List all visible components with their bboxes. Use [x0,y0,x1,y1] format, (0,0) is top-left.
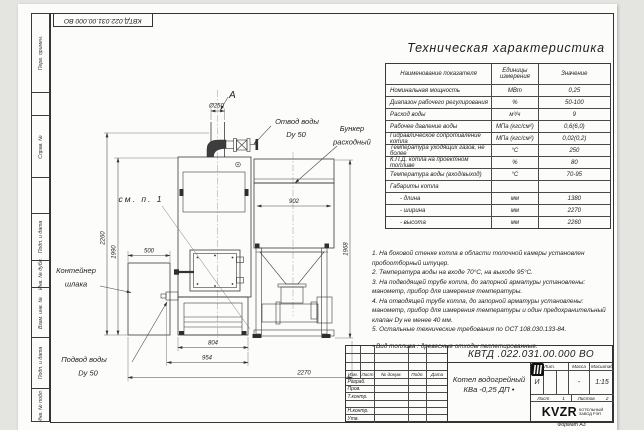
logo-text: KVZR [542,405,577,419]
dim-804: 804 [208,341,219,347]
title-block-left: Изм. Лист № докум. Подп. Дата Разраб. Пр… [346,346,448,423]
table-row: - высота мм 2260 [386,216,610,228]
dim-902: 902 [289,199,300,205]
label-podvod-dy: Dy 50 [78,369,98,378]
boiler-body [161,122,251,335]
label-otvod-dy: Dy 50 [286,130,306,139]
spare-row [346,354,447,362]
product-name: Котел водогрейный КВа -0,25 ДП • [448,363,531,423]
slag-container [128,263,170,335]
note-line: пробоотборный штуцер. [372,259,614,269]
dim-d250: Ø250 [208,104,224,110]
signature-row: Пров. [346,386,447,393]
table-row: Гидравлическое сопротивление котла МПа (… [386,132,610,144]
callouts: Отвод воды Dy 50 Бункер расходный см. п.… [56,117,372,378]
dim-2260: 2260 [101,231,107,246]
sheet-row: Лист 1 Листов 2 [531,395,614,402]
table-row: Номинальная мощность МВт 0,25 [386,84,610,96]
table-row: Рабочее давление воды МПа (кгс/см²) 0,6(… [386,120,610,132]
spare-row [346,363,447,371]
dim-500: 500 [144,249,155,255]
note-line: манометр, прибор для измерения температу… [372,306,614,316]
dim-954: 954 [202,356,213,362]
doc-number: КВТД .022.031.00.000 ВО [448,346,614,363]
label-bunker-2: расходный [332,138,372,147]
note-line: клапан Dу не менее 40 мм. [372,316,614,326]
header-name: Наименование показателя [386,64,491,84]
logo-subtext: КОТЕЛЬНЫЙ ЗАВОД РЭП [579,408,603,417]
signature-row [346,401,447,408]
massa-value: - [569,371,590,394]
note-line: 4. На отводящей трубе котла, до запорной… [372,297,614,307]
kvzr-emblem-icon [531,363,544,376]
feed-bunker [253,159,335,338]
label-container-2: шлака [65,280,87,289]
masshtab-value: 1:15 [590,371,614,394]
dim-1990: 1990 [112,245,118,259]
dimensions: Ø250 2260 1990 500 902 1968 804 [101,104,354,382]
table-row: Габариты котла [386,180,610,192]
table-row: К.П.Д. котла на проектном топливе % 80 [386,156,610,168]
table-row: - длина мм 1380 [386,192,610,204]
tech-table: Наименование показателя Единицы измерени… [385,63,611,229]
label-bunker: Бункер [340,124,364,133]
note-line: 1. На боковой стенке котла в области топ… [372,249,614,259]
dim-2270: 2270 [296,371,311,377]
signature-row: Утв. [346,415,447,422]
format-label: Формат А3 [530,422,613,428]
view-a-label: А [228,90,236,101]
table-title: Техническая характеристика [400,41,612,55]
table-row: Расход воды м³/ч 9 [386,108,610,120]
signature-row: Разраб. [346,379,447,386]
table-row: Диапазон рабочего регулирования % 50-100 [386,96,610,108]
technical-notes: 1. На боковой стенке котла в области топ… [372,249,614,351]
header-units: Единицы измерения [491,64,538,84]
signature-row: Н.контр. [346,408,447,415]
label-container: Контейнер [56,266,96,275]
table-row: Температура уходящих газов, не более °С … [386,144,610,156]
title-block: Изм. Лист № докум. Подп. Дата Разраб. Пр… [345,345,613,422]
header-value: Значение [538,64,610,84]
company-logo: KVZR КОТЕЛЬНЫЙ ЗАВОД РЭП [531,402,614,422]
note-line: 3. На подводящей трубе котла, до запорно… [372,278,614,288]
signature-row: Т.контр. [346,393,447,400]
label-sm-p1: см. п. 1 [119,194,164,204]
signature-header-row: Изм. Лист № докум. Подп. Дата [346,371,447,379]
table-row: Температура воды (вход/выход) °С 70-95 [386,168,610,180]
label-otvod-vody: Отвод воды [275,117,319,126]
drawing-sheet: Перв. примен. Справ. № Подп. и дата Инв.… [0,0,644,430]
spare-row [346,346,447,354]
label-podvod-vody: Подвод воды [61,355,107,364]
table-row: - ширина мм 2270 [386,204,610,216]
water-outlet-valve [207,139,258,158]
note-line: манометр, прибор для измерения температу… [372,287,614,297]
table-header-row: Наименование показателя Единицы измерени… [386,64,610,84]
note-line: 2. Температура воды на входе 70°С, на вы… [372,268,614,278]
dim-1968: 1968 [344,242,350,256]
title-block-right: Лит. Масса Масштаб И - 1:15 Лист 1 Листо… [531,363,614,423]
note-line: 5. Остальные технические требования по О… [372,325,614,335]
